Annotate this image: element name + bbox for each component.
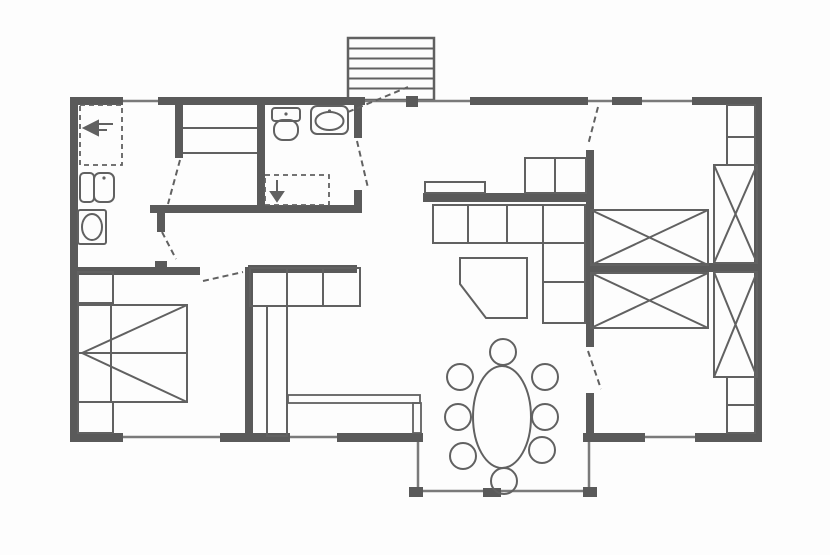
bay-post-bottom-left xyxy=(409,487,423,497)
wall-bath-right-lower xyxy=(354,190,362,213)
wall-top-5 xyxy=(692,97,762,105)
bay-post-top-right xyxy=(583,433,597,442)
wall-bottom-3 xyxy=(337,433,410,442)
wall-top-2 xyxy=(158,97,365,105)
floor-plan xyxy=(0,0,830,555)
wall-top-4 xyxy=(612,97,642,105)
wall-hall-living-bar xyxy=(423,193,588,202)
wall-bottom-4 xyxy=(593,433,645,442)
wall-closet-left xyxy=(175,105,183,158)
wall-hall-top xyxy=(150,205,362,213)
floor-plan-drawing xyxy=(0,0,830,555)
entrance-door-block xyxy=(406,96,418,107)
wall-bath-left xyxy=(257,105,265,205)
bay-post-top-left xyxy=(409,433,423,442)
wall-bottom-5 xyxy=(695,433,762,442)
bay-post-bottom-right xyxy=(583,487,597,497)
washbasin-dot xyxy=(328,109,331,112)
plan-background xyxy=(0,0,830,555)
wall-bottom-2 xyxy=(220,433,290,442)
toilet-dot xyxy=(284,112,287,115)
wall-bedroom1-tick xyxy=(155,261,167,267)
wall-bottom-1 xyxy=(70,433,123,442)
wall-bath-right-upper xyxy=(354,105,362,138)
wall-top-3 xyxy=(470,97,588,105)
wall-utility-stub xyxy=(157,213,165,232)
laundry-fixture-dot xyxy=(102,176,105,179)
